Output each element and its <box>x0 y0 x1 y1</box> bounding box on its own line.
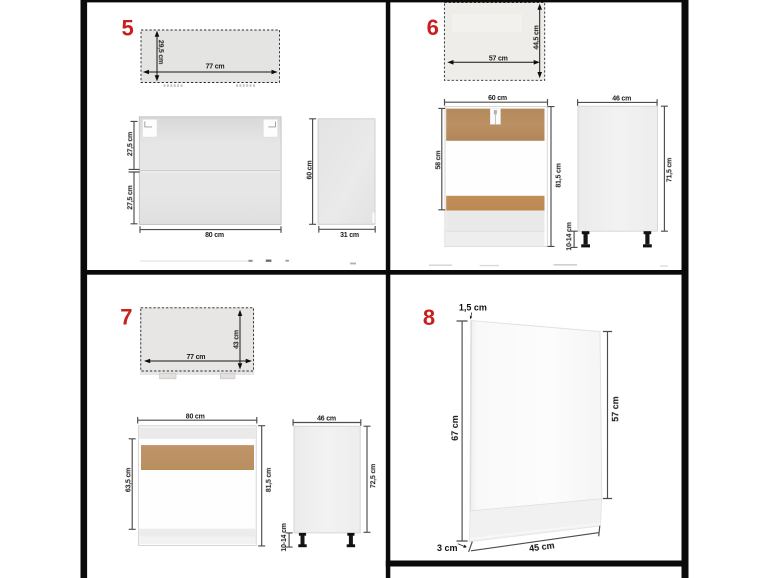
svg-text:77 cm: 77 cm <box>186 354 205 361</box>
svg-text:44,5 cm: 44,5 cm <box>533 25 540 49</box>
svg-text:80 cm: 80 cm <box>186 413 205 420</box>
svg-text:58 cm: 58 cm <box>435 151 442 170</box>
svg-text:71,5 cm: 71,5 cm <box>666 158 673 182</box>
svg-text:77 cm: 77 cm <box>206 64 225 71</box>
svg-text:3 cm: 3 cm <box>437 543 458 553</box>
svg-text:72,5 cm: 72,5 cm <box>370 464 377 488</box>
svg-text:27,5 cm: 27,5 cm <box>127 185 134 209</box>
svg-text:1,5 cm: 1,5 cm <box>459 303 487 313</box>
svg-text:10-14 cm: 10-14 cm <box>566 222 573 250</box>
svg-text:57 cm: 57 cm <box>610 396 620 422</box>
svg-text:46 cm: 46 cm <box>317 415 336 422</box>
svg-text:63,5 cm: 63,5 cm <box>125 468 132 492</box>
svg-text:60 cm: 60 cm <box>307 161 314 180</box>
svg-text:81,5 cm: 81,5 cm <box>266 468 273 492</box>
svg-text:7: 7 <box>120 305 132 330</box>
svg-text:8: 8 <box>423 305 435 330</box>
svg-text:6: 6 <box>427 15 439 40</box>
svg-text:27,5 cm: 27,5 cm <box>127 132 134 156</box>
svg-text:81,5 cm: 81,5 cm <box>556 163 563 187</box>
svg-text:57 cm: 57 cm <box>489 56 508 63</box>
svg-text:60 cm: 60 cm <box>488 95 507 102</box>
svg-text:43 cm: 43 cm <box>233 330 240 349</box>
svg-text:10-14 cm: 10-14 cm <box>281 523 288 551</box>
svg-text:29,5 cm: 29,5 cm <box>157 40 164 64</box>
svg-text:5: 5 <box>121 15 133 40</box>
svg-text:31 cm: 31 cm <box>340 232 359 239</box>
svg-text:46 cm: 46 cm <box>612 95 631 102</box>
svg-text:67 cm: 67 cm <box>450 415 460 441</box>
svg-text:80 cm: 80 cm <box>205 232 224 239</box>
